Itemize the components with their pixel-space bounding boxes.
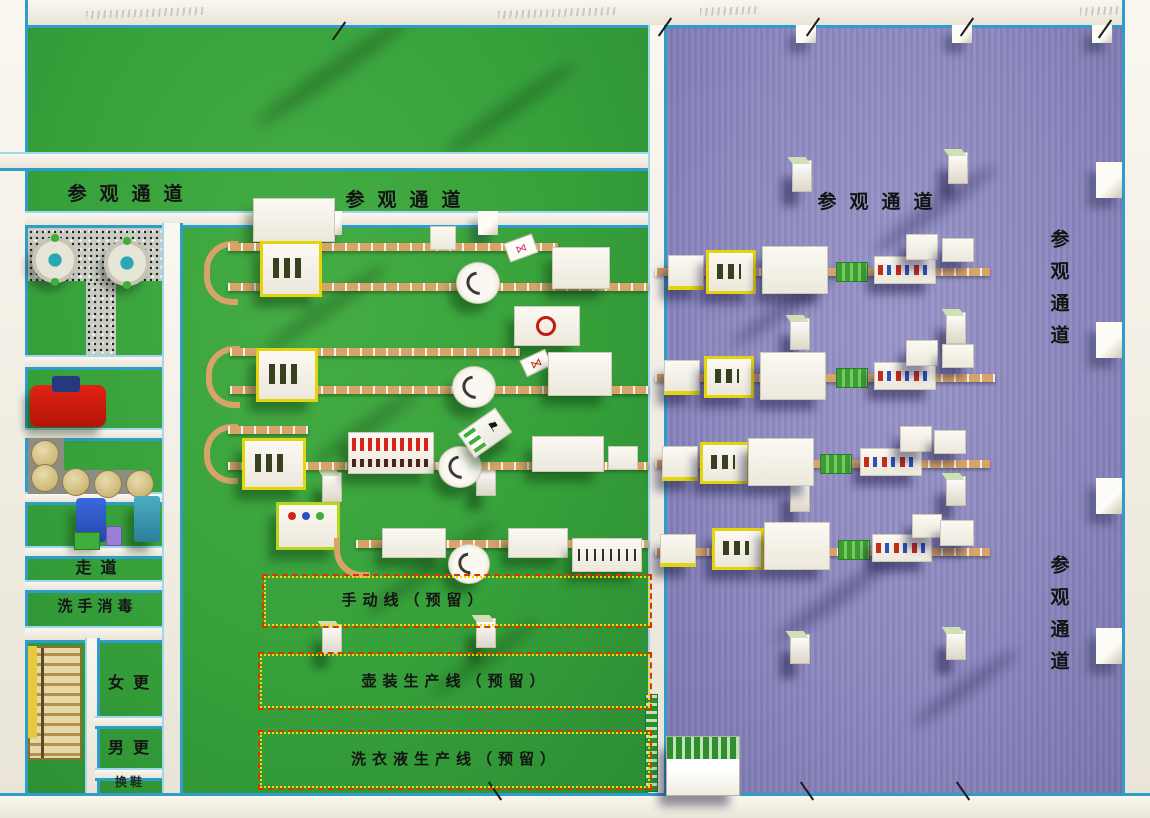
reserved-label-laundry-line: 洗衣液生产线（预留） bbox=[258, 744, 648, 772]
machine-cartoner bbox=[704, 356, 754, 398]
machine-small-unit bbox=[430, 226, 456, 250]
round-tank bbox=[31, 464, 59, 492]
machine-manual-fill-station bbox=[276, 502, 340, 550]
station-dot-green bbox=[316, 512, 324, 520]
wall-marking bbox=[1080, 6, 1120, 15]
palletizing-robot bbox=[906, 234, 938, 260]
wall-bottom bbox=[0, 793, 1150, 818]
palletizing-robot bbox=[906, 340, 938, 366]
machine-end-station bbox=[940, 520, 974, 546]
machine-case-packer bbox=[764, 522, 830, 570]
staircase-rail bbox=[41, 648, 44, 758]
room-label-men-changing: 男更 bbox=[95, 734, 162, 758]
pallet-stack-cube bbox=[666, 736, 740, 796]
purple-crate bbox=[106, 526, 122, 546]
wall-left bbox=[0, 0, 28, 818]
accumulation-turntable bbox=[456, 262, 500, 304]
machine-filler bbox=[256, 348, 318, 402]
machine-inspection bbox=[572, 538, 642, 572]
machine-capper bbox=[382, 528, 446, 558]
corridor-label-right-lower: 参观通道 bbox=[1044, 544, 1074, 680]
machine-case-packer bbox=[760, 352, 826, 400]
machine-capper bbox=[552, 247, 610, 289]
machine-cartoner bbox=[712, 528, 764, 570]
machine-wrap-station bbox=[872, 534, 932, 562]
round-tank bbox=[126, 470, 154, 498]
pillar-stub bbox=[1096, 628, 1122, 664]
machine-capper bbox=[548, 352, 612, 396]
staircase-rail bbox=[28, 646, 37, 738]
column bbox=[946, 312, 966, 344]
machine-filler bbox=[242, 438, 306, 490]
pallet bbox=[836, 368, 868, 388]
conveyor bbox=[228, 426, 308, 434]
column bbox=[946, 476, 966, 506]
accumulation-turntable bbox=[452, 366, 496, 408]
pallet bbox=[820, 454, 852, 474]
column bbox=[946, 630, 966, 660]
machine-wrap-station bbox=[874, 256, 936, 284]
machine-case-packer bbox=[748, 438, 814, 486]
column bbox=[790, 318, 810, 350]
flag-icon: ⚑ bbox=[485, 417, 503, 436]
station-dot-blue bbox=[302, 512, 310, 520]
teal-machine bbox=[134, 496, 160, 542]
reserved-label-jug-line: 壶装生产线（预留） bbox=[258, 666, 648, 694]
column bbox=[790, 482, 810, 512]
wall-right bbox=[1122, 0, 1150, 818]
palletizing-robot bbox=[900, 426, 932, 452]
pillar-stub bbox=[1096, 322, 1122, 358]
machine-checkweigher bbox=[664, 360, 700, 395]
column bbox=[322, 472, 342, 502]
room-label-hand-wash: 洗手消毒 bbox=[30, 592, 160, 618]
pallet bbox=[836, 262, 868, 282]
wall-leftrooms-divider bbox=[162, 223, 183, 793]
bow-icon: ⋈ bbox=[529, 356, 544, 371]
factory-floor-plan: ⋈ ⋈ ⚑ bbox=[0, 0, 1150, 818]
room-label-women-changing: 女更 bbox=[95, 668, 162, 694]
machine-checkweigher bbox=[668, 255, 704, 290]
wall-upper-corridor-top bbox=[0, 152, 648, 171]
terrazzo-corridor-strip bbox=[86, 281, 116, 355]
room-label-shoe-change: 换鞋 bbox=[100, 773, 160, 789]
station-dot-red bbox=[288, 512, 296, 520]
round-tank bbox=[62, 468, 90, 496]
machine-checkweigher bbox=[662, 446, 698, 481]
machine-checkweigher bbox=[660, 534, 696, 567]
corridor-label-top-right: 参观通道 bbox=[790, 186, 960, 214]
machine-bottle-filler bbox=[348, 432, 434, 474]
green-crate bbox=[74, 532, 100, 550]
kettle-ring bbox=[536, 316, 556, 336]
machine-labeler bbox=[508, 528, 568, 558]
machine-end-station bbox=[942, 238, 974, 262]
machine-filler bbox=[260, 241, 322, 297]
machine-wrap-station bbox=[860, 448, 922, 476]
round-mixer-machine bbox=[32, 237, 78, 283]
pillar-stub bbox=[1096, 478, 1122, 514]
machine-end-station bbox=[934, 430, 966, 454]
wall-room bbox=[25, 355, 162, 370]
wall-room bbox=[95, 716, 162, 729]
pillar-stub bbox=[1096, 162, 1122, 198]
room-label-walkway: 走道 bbox=[40, 554, 152, 578]
column bbox=[948, 152, 968, 184]
machine-capper bbox=[532, 436, 604, 472]
column bbox=[322, 624, 342, 654]
bow-icon: ⋈ bbox=[514, 241, 528, 255]
machine-small-unit bbox=[608, 446, 638, 470]
machine-end-station bbox=[942, 344, 974, 368]
round-tank bbox=[94, 470, 122, 498]
pillar-stub bbox=[478, 211, 498, 235]
corridor-label-right-upper: 参观通道 bbox=[1044, 218, 1074, 354]
palletizing-robot bbox=[912, 514, 942, 538]
red-machine-top-unit bbox=[52, 376, 80, 392]
machine-wrap-station bbox=[874, 362, 936, 390]
machine-cartoner bbox=[706, 250, 756, 294]
corridor-label-top-mid: 参观通道 bbox=[318, 184, 488, 212]
round-mixer-machine bbox=[104, 240, 150, 286]
machine-case-packer bbox=[762, 246, 828, 294]
reserved-label-manual-line: 手动线（预留） bbox=[262, 584, 562, 614]
pallet bbox=[838, 540, 870, 560]
machine-cartoner bbox=[700, 442, 750, 484]
corridor-label-top-left: 参观通道 bbox=[40, 178, 210, 206]
column bbox=[790, 634, 810, 664]
